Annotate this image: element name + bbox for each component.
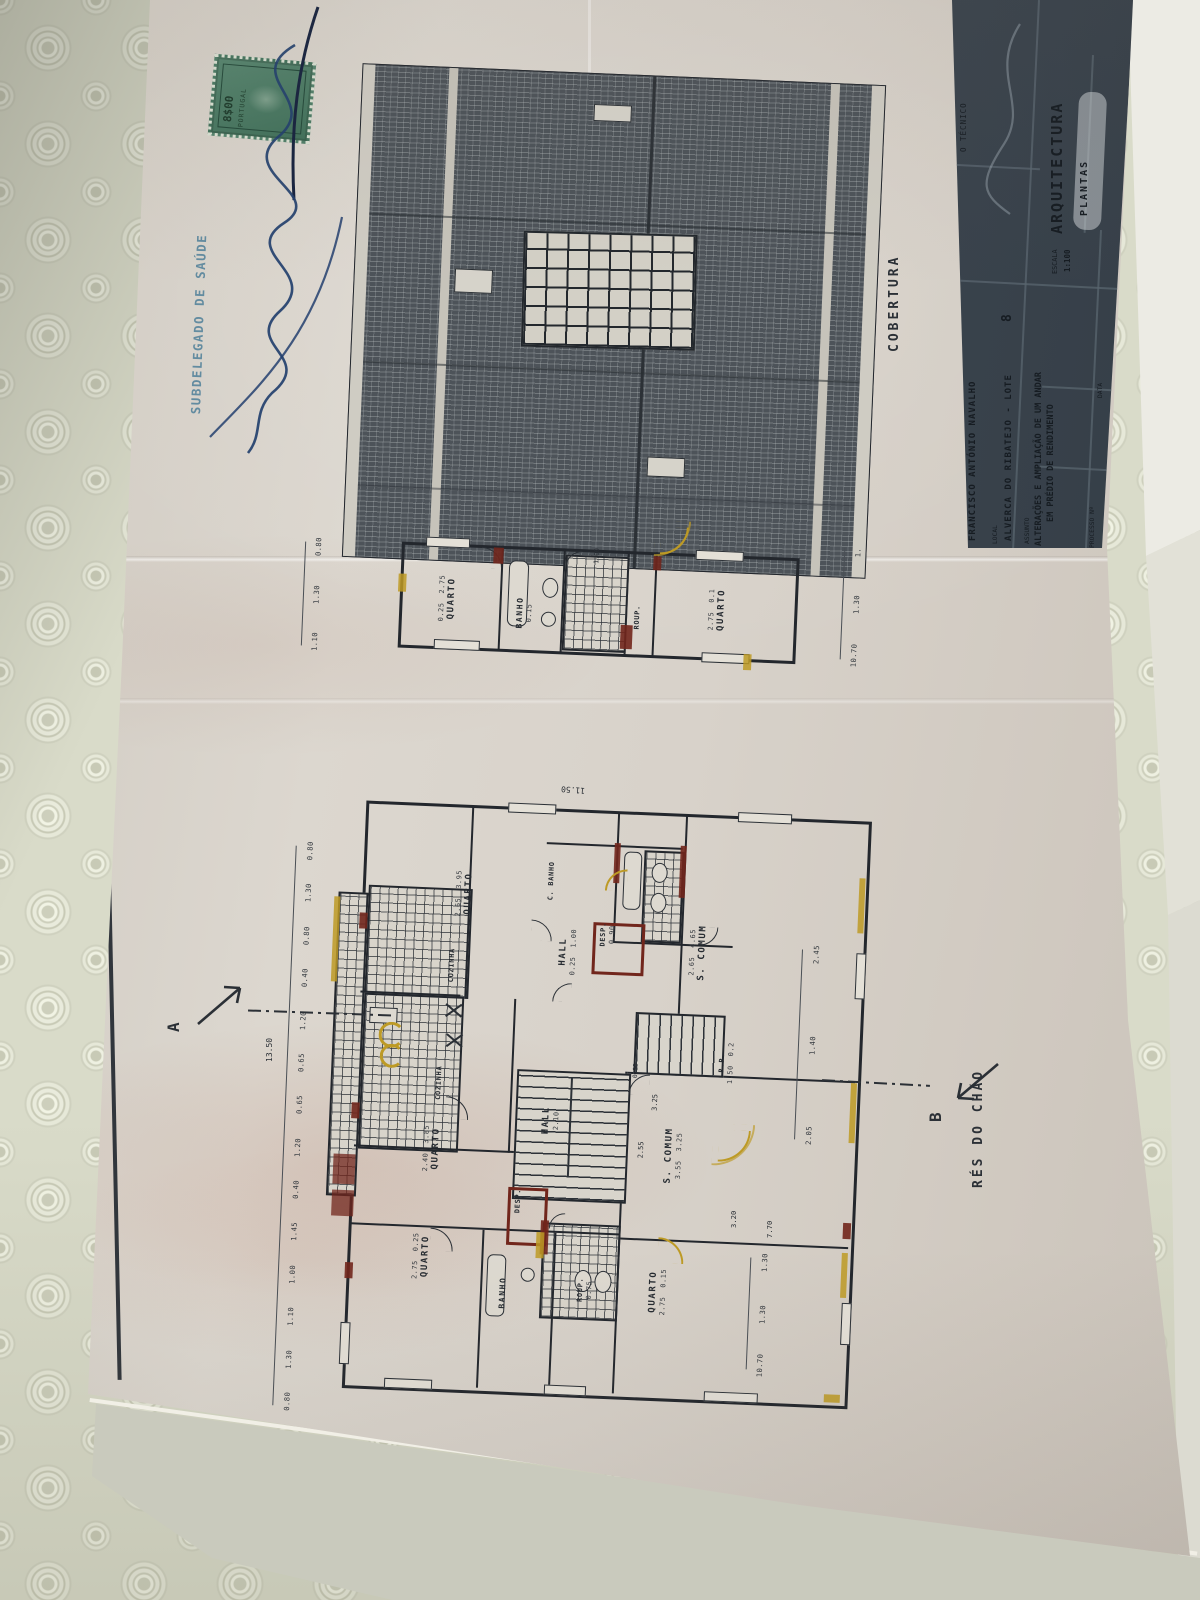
room-label: 0.252.75 QUARTO (437, 575, 458, 622)
floor-plan-title: RÉS DO CHÃO (972, 1069, 985, 1188)
approval-signature (200, 5, 350, 465)
assunto-label: ASSUNTO (1025, 517, 1031, 544)
dim-text: 0.40 (290, 1180, 300, 1199)
dim-text: 7.70 (766, 1221, 773, 1238)
room-label: COZINHA (434, 1065, 443, 1100)
roof-chimney-3 (647, 457, 686, 479)
room-label: HALL 0.251.00 (557, 928, 578, 975)
dim-text: 1.10 (285, 1307, 295, 1326)
dim-chain-upper-right: 1.1.3010.70 (840, 547, 872, 660)
discipline-label: ARQUITECTURA (1050, 102, 1065, 234)
requerente-label: REQUERENTE (957, 506, 963, 544)
room-label: COZINHA (447, 948, 456, 983)
worn-streak (1073, 91, 1107, 230)
dim-text: 0.40 (299, 968, 309, 987)
room-label: DESP. (513, 1189, 522, 1214)
dim-text: 1. (853, 548, 862, 558)
room-label: QUARTO 2.750.15 (647, 1268, 668, 1315)
dim-text: 1.30 (283, 1349, 293, 1368)
dim-text: 0.80 (282, 1392, 292, 1411)
room-label: BANHO (497, 1276, 507, 1308)
room-label: 2.653.95 QUARTO (454, 870, 475, 917)
room-label: 2.750.1 QUARTO (707, 588, 728, 631)
section-marker-b: B (928, 1112, 944, 1122)
section-arrow-a (194, 980, 252, 1028)
dim-text: 0.80 (313, 537, 323, 556)
requerente-value: FRANCISCO ANTÓNIO NAVALHO (969, 381, 978, 541)
dim-text-overall-height: 13.50 (266, 1038, 274, 1062)
room-label: S. COMUM 3.553.25 (663, 1127, 684, 1184)
dim-text: 1.30 (311, 584, 321, 603)
roof-ridge-strip-2 (811, 84, 841, 576)
room-label: DESP. 0.90 (599, 922, 617, 947)
room-label: 2.750.25 QUARTO (410, 1232, 431, 1279)
dim-text: 1.30 (757, 1304, 767, 1323)
room-label: R.P. 1.500.2 (717, 1042, 736, 1085)
dim-text: 10.70 (849, 643, 859, 667)
processo-label: PROCESSO Nº (1090, 506, 1096, 548)
dim-chain-upper-left: 0.801.301.10 (301, 542, 330, 647)
dim-text: 1.10 (309, 632, 319, 651)
room-label: 2.654.65 S. COMUM (687, 924, 708, 981)
dim-text: 3.25 (652, 1094, 660, 1111)
roof-margin-right (851, 86, 885, 578)
dim-text: 0.80 (305, 841, 315, 860)
architectural-drawing-paper: COBERTURA 0.252.75 (0, 0, 1200, 1600)
dim-text: 1.00 (287, 1264, 297, 1283)
local-label: LOCAL (993, 525, 999, 544)
dim-text: 2.05 (803, 1126, 813, 1145)
roof-terrace-grid (521, 231, 698, 351)
roof-chimney-1 (454, 268, 493, 294)
dim-text: 1.40 (807, 1035, 817, 1054)
room-label: C. BANHO (546, 861, 556, 900)
fold-crease-2 (90, 698, 1150, 704)
roof-ridge-strip-1 (429, 68, 459, 560)
upper-floor-plan: 0.252.75 QUARTO BANHO 0.15 ROUP. 2.750.1… (393, 515, 811, 674)
room-label: BANHO 0.15 (515, 596, 534, 629)
dim-text: 2.55 (638, 1141, 646, 1158)
roof-plan (342, 63, 886, 579)
dim-text-overall-width: 11.50 (561, 784, 586, 794)
photo-of-architectural-drawing: { "colors": { "paper": "#d8d2ca", "ink":… (0, 0, 1200, 1600)
technician-signature (968, 12, 1038, 222)
dim-text: 1.30 (303, 883, 313, 902)
local-value: ALVERCA DO RIBATEJO - LOTE (1005, 374, 1014, 541)
room-label: HALL 2.10 (541, 1106, 561, 1135)
escala-value: 1:100 (1064, 249, 1072, 272)
demolition-x-mark (446, 1032, 463, 1049)
roof-chimney-2 (593, 104, 632, 123)
room-label: ROUP. 0.75 (576, 1277, 594, 1302)
dim-text: 1.45 (289, 1222, 299, 1241)
dim-chain-main-bottom-right: 1.301.3010.70 (746, 1257, 778, 1370)
dim-text: 0.65 (294, 1095, 304, 1114)
section-marker-a: A (166, 1022, 182, 1032)
room-label: ROUP. (633, 605, 642, 630)
assunto-line1: ALTERAÇÕES E AMPLIAÇÃO DE UM ANDAR (1035, 372, 1044, 546)
dim-text: 1.30 (759, 1253, 769, 1272)
dim-text: 2.45 (811, 945, 821, 964)
dim-text: 0.65 (296, 1053, 306, 1072)
dim-text: 1.20 (292, 1137, 302, 1156)
room-label: 2.403.85 QUARTO (421, 1125, 442, 1172)
dim-text: 1.00 (593, 548, 600, 564)
lote-number: 8 (1001, 314, 1014, 322)
data-label: DATA (1098, 383, 1104, 398)
dim-text: 3.20 (730, 1211, 737, 1228)
dim-text: 1.30 (851, 594, 861, 613)
dim-text: 10.70 (755, 1353, 765, 1377)
staircase-upper-flight (633, 1012, 726, 1078)
roof-plan-title: COBERTURA (888, 255, 901, 352)
assunto-line2: EM PRÉDIO DE RENDIMENTO (1047, 404, 1056, 522)
demolition-x-mark (445, 1002, 462, 1019)
dim-text: 0.80 (301, 926, 311, 945)
escala-label: ESCALA (1052, 249, 1059, 274)
dim-text: 0.25 (633, 1063, 640, 1078)
drawing-type-label: PLANTAS (1080, 160, 1090, 216)
technician-label: O TÉCNICO (960, 102, 968, 152)
